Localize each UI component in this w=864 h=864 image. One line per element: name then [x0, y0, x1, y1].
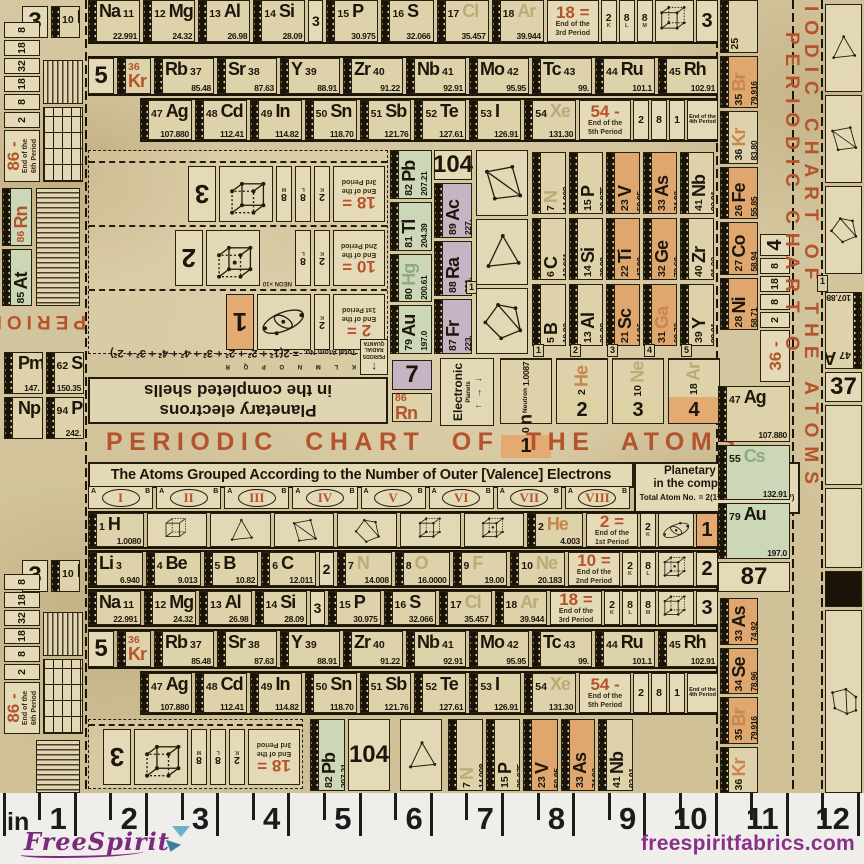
element-tile-Y: Y3988.91: [280, 631, 340, 667]
film-strip: [327, 1, 335, 41]
atomic-weight: 126.91: [480, 130, 518, 139]
data-table-graphic: [43, 659, 83, 734]
atomic-weight: 112.41: [206, 703, 244, 712]
film-strip: [391, 255, 399, 302]
film-strip: [470, 59, 478, 93]
element-tile-V: 23V50.95: [523, 719, 558, 791]
element-symbol: N: [542, 191, 560, 203]
shell-count: 1: [669, 100, 685, 140]
atomic-weight: 207.21: [340, 722, 345, 788]
element-symbol: Sn: [330, 675, 351, 693]
ruler-number: 10: [673, 803, 712, 834]
element-symbol: Ne: [77, 8, 80, 26]
shell-count: 32: [4, 58, 40, 74]
atomic-number: 13: [209, 9, 221, 20]
empty-box: [825, 488, 862, 568]
atomic-weight: 30.975: [599, 155, 603, 211]
atomic-weight: 197.0: [729, 549, 787, 558]
shell-letter: K: [628, 572, 632, 578]
far-right-tiles: 47Ag107.88037: [825, 292, 862, 402]
atomic-number: 41: [612, 776, 623, 788]
element-symbol: Cd: [221, 675, 243, 693]
element-tile-Pb: 82Pb207.21: [310, 719, 345, 791]
grid-row: 5B10.8213Al26.9821Sc44.9631Ga69.7239Y88.…: [532, 284, 716, 346]
atomic-weight: 26.98: [209, 32, 247, 41]
atomic-number: 41: [442, 640, 454, 651]
film-strip: [659, 632, 667, 666]
atomic-weight: 126.91: [480, 703, 518, 712]
atomic-number: 42: [507, 67, 519, 78]
atomic-weight: 200.61: [420, 257, 429, 300]
film-strip: [155, 632, 163, 666]
element-tile-Sm: 62Sm150.35: [46, 352, 85, 394]
inch-tick: [359, 793, 362, 836]
atomic-number: 82: [404, 184, 415, 196]
element-tile-Rn: 86Rn: [392, 393, 432, 422]
element-symbol: Rb: [165, 633, 187, 651]
film-strip: [199, 1, 207, 41]
film-strip: [415, 674, 423, 712]
group-numeral: IV: [306, 489, 344, 507]
element-tile-Te: 52Te127.61: [414, 100, 466, 140]
atomic-number: 23: [537, 776, 548, 788]
atomic-weight: 19.00: [464, 576, 505, 585]
period-total: 86 -: [5, 693, 22, 722]
shell-count-pairs: 0nNeutron1.008712He210Ne318Ar4: [500, 358, 716, 424]
period-caption: End of the1st Period: [595, 530, 629, 546]
shell-letter: L: [301, 186, 304, 192]
up-arrow-icon: ↑: [371, 360, 377, 374]
atomic-weight: 99.: [543, 657, 589, 666]
element-symbol: B: [542, 323, 560, 335]
row-divider: 3: [310, 591, 325, 625]
element-tile-P: 15P30.975: [569, 152, 603, 214]
film-strip: [449, 720, 457, 790]
film-strip: [438, 1, 446, 41]
element-tile-Br: 35Br79.916: [720, 697, 758, 744]
group-b-label: B: [213, 488, 218, 495]
atomic-weight: 35.457: [448, 32, 486, 41]
element-symbol: Rh: [684, 633, 706, 651]
element-tile-S: 16S32.066: [381, 0, 433, 42]
valence-group-III: AIIIB: [224, 486, 289, 509]
atomic-weight: 24.32: [155, 615, 194, 624]
film-strip: [251, 101, 259, 139]
element-tile-Ne: 10Ne20.183: [510, 552, 565, 586]
shell-letter: L: [625, 24, 628, 30]
atomic-weight: 88.91: [710, 287, 714, 343]
element-tile-Ga: 31Ga69.72: [643, 284, 677, 346]
column-number: 1: [533, 344, 544, 357]
element-tile-Ru: 44Ru101.1: [595, 631, 655, 667]
element-symbol: In: [275, 675, 289, 693]
film-strip: [306, 101, 314, 139]
atomic-weight: 30.975: [339, 615, 378, 624]
film-strip: [524, 720, 532, 790]
shell-letter: K: [607, 24, 611, 30]
atomic-number: 40: [694, 265, 705, 277]
electronic-planets-box: Electronic Planets ↑ → ↓: [440, 358, 492, 424]
element-row-period3: Na1122.99112Mg24.3213Al26.9814Si28.09315…: [88, 589, 718, 627]
element-symbol: Si: [579, 248, 597, 263]
left-period6-cap-rotated: 86 -End of the6th Period281832188: [4, 60, 84, 182]
film-strip: [415, 101, 423, 139]
element-symbol: Zr: [354, 633, 370, 651]
element-tile-Si: 14Si28.09: [569, 218, 603, 280]
vertical-selvage-title: IODIC CHART OF THE ATOMS PERIODIC CHART …: [794, 6, 820, 793]
ruler-band: in 123456789101112 FreeSpirit freespirit…: [0, 793, 864, 864]
element-symbol: Y: [291, 633, 302, 651]
fine-print-block: [36, 740, 80, 793]
constellation-svg: [150, 516, 204, 545]
element-symbol: Y: [291, 60, 302, 78]
valence-group-II: AIIB: [156, 486, 221, 509]
atomic-number: 79: [729, 512, 741, 523]
atomic-number: 49: [261, 682, 273, 693]
film-strip: [3, 250, 11, 306]
atomic-weight: 74.92: [591, 722, 596, 788]
pair-element: 0nNeutron1.0087: [501, 359, 551, 435]
actinide-column: 10489Ac227.88Ra226.87Fr223.: [434, 150, 472, 354]
element-tile-Ar: 18Ar39.944: [495, 591, 548, 625]
constellation-svg: [479, 223, 525, 281]
film-strip: [344, 59, 352, 93]
atomic-number: 38: [248, 67, 260, 78]
empty-box: [825, 405, 862, 485]
film-strip: [644, 153, 652, 213]
atomic-weight: 147.: [15, 384, 40, 393]
element-symbol: S: [407, 2, 418, 20]
group-numeral: I: [102, 489, 140, 507]
element-tile-Au: 79Au197.0: [390, 305, 432, 354]
atomic-number: 32: [657, 265, 668, 277]
element-tile-Fr: 87Fr223.: [434, 299, 472, 354]
atomic-number: 17: [450, 600, 462, 611]
element-tile-Ti: 22Ti47.90: [606, 218, 640, 280]
atomic-number: 39: [305, 640, 317, 651]
element-symbol: Pu: [71, 399, 84, 417]
atomic-number: 5: [215, 561, 221, 572]
atomic-number: 89: [448, 223, 459, 235]
element-tile-Ru: 44Ru101.1: [595, 58, 655, 94]
element-row-period5: 536KrRb3785.48Sr3887.63Y3988.91Zr4091.22…: [88, 56, 718, 96]
constellation-svg: [827, 100, 859, 177]
element-symbol: Ne: [536, 554, 557, 572]
atomic-number: 38: [248, 640, 260, 651]
element-tiles: 536KrRb3785.48Sr3887.63Y3988.91Zr4091.22…: [88, 58, 718, 94]
valence-group-IV: AIVB: [292, 486, 357, 509]
film-strip: [361, 101, 369, 139]
period-summary-row: 18 =End of the3rd Period2K8L8M3: [89, 724, 302, 788]
period-total: 54 -: [590, 676, 619, 693]
atomic-weight: 85.48: [165, 84, 211, 93]
atomic-weight: 242.: [57, 429, 82, 438]
film-strip: [721, 649, 729, 694]
half-inch-tick: [537, 793, 540, 820]
atomic-number: 27: [734, 260, 745, 272]
atomic-number: 18: [506, 600, 518, 611]
element-symbol: V: [533, 763, 551, 774]
valence-group-row: AIBAIIBAIIIBAIVBAVBAVIBAVIIBAVIIIB: [88, 486, 630, 509]
atomic-weight: 121.76: [371, 130, 409, 139]
element-tile-Cl: 17Cl35.457: [439, 591, 492, 625]
inch-tick: [3, 793, 6, 836]
shell-count: 2K: [314, 230, 330, 286]
atomic-weight: 32.066: [395, 615, 434, 624]
element-symbol: Au: [400, 315, 418, 337]
period-number-7: 7: [392, 360, 432, 390]
atomic-number: 48: [206, 109, 218, 120]
element-tile-Xe: 54Xe131.30: [524, 673, 576, 713]
group-b-label: B: [418, 488, 423, 495]
film-strip: [396, 553, 404, 585]
element-tile-Ar: 18Ar39.944: [492, 0, 544, 42]
element-symbol: Sr: [228, 633, 245, 651]
atomic-weight: 78.96: [750, 651, 758, 692]
element-tiles: 47Ag107.88048Cd112.4149In114.8250Sn118.7…: [140, 100, 576, 140]
element-symbol: Sb: [385, 675, 406, 693]
element-tile-Cd: 48Cd112.41: [195, 673, 247, 713]
group-numeral: VIII: [578, 489, 616, 507]
shell-letter: K: [320, 314, 324, 320]
element-tile-Si: 14Si28.09: [253, 0, 305, 42]
group-numeral: V: [374, 489, 412, 507]
atomic-number: 35: [734, 729, 745, 741]
group-numeral: II: [170, 489, 208, 507]
film-strip: [52, 7, 60, 37]
atomic-weight: 55.85: [750, 170, 758, 217]
element-row-period2: Li36.9404Be9.0135B10.826C12.01127N14.008…: [88, 550, 718, 588]
shell-count: 32: [4, 610, 40, 626]
element-tile-Li: Li36.940: [88, 552, 143, 586]
logo-triangle-icon: [172, 826, 190, 837]
atomic-number: 55: [729, 454, 741, 465]
element-symbol: Nb: [608, 752, 626, 774]
element-tile-Mg: 12Mg24.32: [143, 0, 195, 42]
element-symbol: Ra: [444, 258, 462, 279]
element-tile-Ge: 32Ge72.60: [643, 218, 677, 280]
atomic-number: 52: [425, 109, 437, 120]
period-cap-main: 54 -End of the5th Period: [579, 673, 631, 713]
period-caption: End of the3rd Period: [555, 21, 590, 37]
film-strip: [256, 592, 264, 624]
element-tile-I: 53I126.91: [469, 100, 521, 140]
element-symbol: Mo: [480, 633, 504, 651]
side-caption: End of the4th Period: [687, 100, 718, 140]
element-tile-Sb: 51Sb121.76: [360, 100, 412, 140]
atomic-number: 94: [57, 406, 69, 417]
film-strip: [338, 553, 346, 585]
film-strip: [719, 504, 727, 558]
period-cap-3: 18 =End of the3rd Period2K8L8M3: [550, 591, 718, 625]
ruler-number: 12: [815, 803, 854, 834]
atomic-weight: 102.91: [669, 84, 715, 93]
atomic-weight: 95.95: [480, 657, 526, 666]
period-summary-row: 18 =End of the3rd Period2K8L8M3: [89, 161, 387, 225]
group-a-label: A: [295, 488, 300, 495]
fabric-swatch-photo: Na1122.99112Mg24.3213Al26.9814Si28.09315…: [0, 0, 864, 864]
film-strip: [344, 632, 352, 666]
element-symbol: Pm: [18, 354, 43, 372]
period-caption: End of the1st Period: [342, 305, 376, 321]
element-tile-Zr: Zr4091.22: [343, 631, 403, 667]
atomic-weight: 85.48: [165, 657, 211, 666]
pair-element: 18Ar: [669, 359, 719, 397]
formula-label: Total Atom No.: [304, 348, 357, 357]
element-tile-Nb: 41Nb92.91: [680, 152, 714, 214]
vertical-title-top: IODIC CHART OF THE ATOMS: [801, 6, 820, 793]
number-cell: 5: [88, 631, 114, 667]
film-strip: [721, 112, 729, 163]
atomic-number: 3: [116, 561, 122, 572]
atomic-number: 45: [669, 67, 681, 78]
atomic-number: 47: [839, 350, 851, 361]
shell-pair-He: 2He2: [556, 358, 608, 424]
constellation-svg: [403, 724, 440, 787]
shell-letter: L: [628, 611, 631, 617]
film-strip: [144, 1, 152, 41]
fine-print-block: [36, 188, 80, 306]
shell-count: 8L: [640, 552, 656, 586]
atomic-number: 87: [448, 339, 459, 351]
film-strip: [281, 632, 289, 666]
atomic-number: 53: [480, 682, 492, 693]
film-strip: [89, 514, 97, 546]
valence-group-I: AIB: [88, 486, 153, 509]
atomic-weight: 28.09: [264, 32, 302, 41]
element-symbol: Cl: [462, 2, 478, 20]
shell-count: 1: [669, 673, 685, 713]
planetary-line2: in the completed shells: [94, 381, 382, 401]
atomic-number: 9: [464, 561, 470, 572]
atomic-number: 7: [462, 782, 473, 788]
atomic-weight: 227.: [464, 186, 472, 235]
shell-count: 8L: [295, 230, 311, 286]
freespirit-logo: FreeSpirit: [24, 830, 170, 854]
right-rotated-tiles: 2535Br79.91636Kr83.8026Fe55.8527Co58.942…: [720, 0, 758, 330]
quanta-axis-label: RADIAL QUANTA: [361, 340, 387, 352]
constellation-diagram: [337, 513, 397, 547]
electronic-label: Electronic: [451, 363, 465, 421]
element-symbol: Zr: [690, 247, 708, 263]
atomic-weight: 87.63: [228, 657, 274, 666]
atomic-number: 10: [62, 15, 74, 26]
element-tile-S: 16S32.066: [384, 591, 437, 625]
atomic-number: 35: [734, 93, 745, 105]
period-total: 18 =: [559, 591, 593, 608]
atomic-weight: 79.916: [750, 700, 758, 741]
film-strip: [118, 632, 126, 666]
number-cell: 104: [348, 719, 390, 791]
period-diagram: [219, 166, 273, 222]
element-tile-Rh: 45Rh102.91: [658, 58, 718, 94]
arrows-icon: ↑ → ↓: [473, 376, 483, 409]
shell-letters: K L M N O P Q R: [110, 363, 356, 369]
period-caption: End of the5th Period: [588, 120, 622, 136]
period-caption: End of the3rd Period: [559, 608, 594, 624]
period-caption: End of the6th Period: [22, 139, 38, 173]
atomic-number: 80: [404, 288, 415, 300]
row-divider: 2: [319, 552, 334, 586]
group-a-label: A: [568, 488, 573, 495]
period-diagram: [134, 729, 188, 785]
group-a-label: A: [227, 488, 232, 495]
constellation-diagram: [274, 513, 334, 547]
atomic-number: 15: [337, 9, 349, 20]
film-strip: [607, 153, 615, 213]
element-symbol: Al: [224, 2, 240, 20]
element-tile-Kr: 36Kr: [720, 747, 758, 794]
film-strip: [533, 59, 541, 93]
film-strip: [470, 632, 478, 666]
element-tile-Sn: 50Sn118.70: [305, 673, 357, 713]
element-symbol: P: [579, 186, 597, 197]
atomic-weight: 79.916: [750, 59, 758, 106]
atomic-number: 12: [155, 600, 167, 611]
atomic-number: 17: [448, 9, 460, 20]
shell-letter: M: [642, 24, 647, 30]
half-inch-tick: [38, 793, 41, 820]
element-symbol: N: [357, 554, 369, 572]
atomic-weight: 101.1: [606, 657, 652, 666]
film-strip: [391, 203, 399, 250]
constellation-diagram: [476, 219, 528, 285]
element-tile-Np: Np: [4, 397, 43, 439]
element-symbol: Al: [579, 313, 597, 329]
constellation-svg: [214, 516, 268, 545]
group-numeral: VII: [510, 489, 548, 507]
group-b-label: B: [349, 488, 354, 495]
shell-letter: M: [646, 611, 651, 617]
atomic-number: 37: [190, 640, 202, 651]
atomic-number: 51: [371, 682, 383, 693]
film-strip: [5, 353, 13, 393]
element-symbol: He: [547, 515, 568, 533]
film-strip: [659, 59, 667, 93]
atomic-weight: 12.011: [272, 576, 313, 585]
element-tile-Si: 14Si28.09: [255, 591, 308, 625]
atomic-number: 50: [316, 109, 328, 120]
atomic-number: 16: [392, 9, 404, 20]
film-strip: [52, 561, 60, 591]
atomic-weight: 28.09: [266, 615, 305, 624]
element-tile-Mo: Mo4295.95: [469, 631, 529, 667]
film-strip: [681, 219, 689, 279]
shell-count: 8: [4, 574, 40, 590]
element-symbol: Sm: [71, 354, 84, 372]
element-tile-N: 7N14.008: [337, 552, 392, 586]
atomic-number: 23: [620, 199, 631, 211]
valence-group-VII: AVIIB: [497, 486, 562, 509]
half-inch-tick: [181, 793, 184, 820]
constellation-diagram: [825, 186, 862, 274]
element-tile-Al: 13Al26.98: [199, 591, 252, 625]
element-tile-In: 49In114.82: [250, 673, 302, 713]
atomic-weight: 150.35: [57, 384, 82, 393]
element-symbol: F: [472, 554, 482, 572]
shell-count: 18: [4, 40, 40, 56]
diagram-note: NEON ×10: [263, 230, 292, 286]
shell-count: 8L: [619, 0, 635, 42]
shell-count: 8L: [622, 591, 638, 625]
period-total: 10 =: [577, 552, 611, 569]
period-index: 3: [696, 0, 718, 42]
atomic-weight: 87.63: [228, 84, 274, 93]
atomic-weight: 22.991: [99, 32, 137, 41]
element-symbol: Kr: [730, 129, 748, 147]
constellation-diagram: [825, 610, 862, 793]
atomic-number: 54: [535, 682, 547, 693]
